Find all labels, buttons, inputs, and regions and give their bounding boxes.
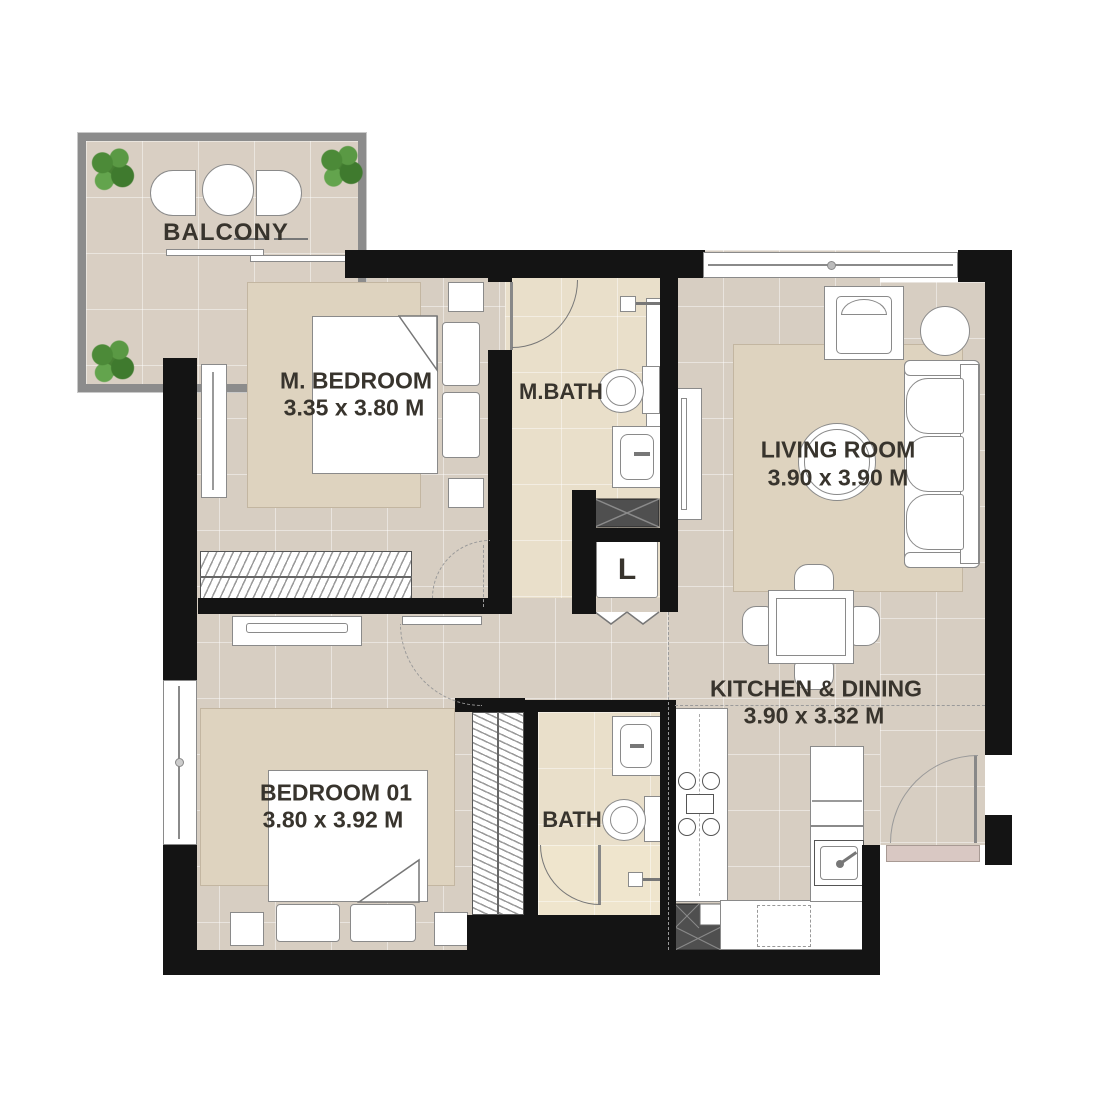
dishwasher-icon <box>757 905 811 947</box>
round-side-table-icon <box>920 306 970 356</box>
entry-step <box>886 845 980 862</box>
tv-unit-icon <box>674 388 702 520</box>
bed-fold-icon <box>357 858 421 904</box>
balcony-chair-icon <box>256 170 302 216</box>
wall-laundry-top <box>594 528 660 542</box>
shower-arm <box>636 302 660 305</box>
nightstand-icon <box>230 912 264 946</box>
plant-icon <box>88 146 136 194</box>
wall-bath-top <box>538 700 660 712</box>
room-dims-bedroom-01: 3.80 x 3.92 M <box>263 809 404 832</box>
wall-bottom-left <box>163 950 480 975</box>
hall-divider <box>483 545 484 607</box>
wall-laundry-left <box>572 490 596 614</box>
wall-bedrooms-divider <box>198 598 512 614</box>
room-dims-m-bedroom: 3.35 x 3.80 M <box>284 397 425 420</box>
toilet-tank <box>642 366 660 414</box>
toilet-seat <box>606 376 636 406</box>
basin-tap <box>634 452 650 456</box>
floor-plan: BALCONY M. BEDROOM 3.35 x 3.80 M M.BATH … <box>0 0 1100 1100</box>
wall-mbath-left-top <box>488 250 512 282</box>
plant-icon <box>88 338 136 386</box>
wall-mbath-right <box>660 250 678 612</box>
pillow-icon <box>276 904 340 942</box>
dresser-inner <box>246 623 348 633</box>
kitchen-corner-unit-icon <box>674 903 722 951</box>
room-label-laundry: L <box>618 555 636 585</box>
balcony-table-icon <box>202 164 254 216</box>
room-dims-living-room: 3.90 x 3.90 M <box>768 467 909 490</box>
room-label-m-bedroom: M. BEDROOM <box>280 370 432 393</box>
stove-burner-icon <box>678 772 696 790</box>
room-dims-kitchen-dining: 3.90 x 3.32 M <box>744 705 885 728</box>
m-bedroom-window-line <box>212 372 214 490</box>
wash-basin-bowl <box>620 434 654 480</box>
shower-head-icon <box>628 872 643 887</box>
wardrobe-midline <box>200 576 412 578</box>
dining-chair-icon <box>794 564 834 592</box>
toilet-seat <box>610 806 638 834</box>
fridge-door-line <box>812 800 862 802</box>
dining-table-inner <box>776 598 846 656</box>
dining-chair-icon <box>742 606 770 646</box>
shower-tray-icon <box>594 498 660 528</box>
pillow-icon <box>442 392 480 458</box>
wall-lobby-right <box>862 845 880 952</box>
stove-burner-icon <box>702 772 720 790</box>
room-label-bedroom-01: BEDROOM 01 <box>260 782 412 805</box>
wall-mbath-left <box>488 350 512 598</box>
nightstand-icon <box>434 912 468 946</box>
wardrobe-midline <box>497 712 499 915</box>
wall-top <box>345 250 705 278</box>
wall-bottom-kitchen <box>455 950 880 975</box>
nightstand-icon <box>448 282 484 312</box>
room-label-kitchen-dining: KITCHEN & DINING <box>710 678 922 701</box>
balcony-chair-icon <box>150 170 196 216</box>
tv-unit-inner <box>681 398 687 510</box>
shower-head-icon <box>620 296 636 312</box>
pillow-icon <box>350 904 416 942</box>
fridge-icon <box>810 746 864 826</box>
wall-left-upper <box>163 358 197 680</box>
stove-center-panel <box>686 794 714 814</box>
room-label-balcony: BALCONY <box>163 221 289 245</box>
sofa-cushion <box>906 494 964 550</box>
basin-tap <box>630 744 644 748</box>
wall-bath-left <box>524 700 538 950</box>
mask-below-step <box>880 862 1012 975</box>
stove-burner-icon <box>678 818 696 836</box>
wall-right-upper <box>985 250 1012 755</box>
pillow-icon <box>442 322 480 386</box>
wall-bath-bottom <box>467 915 676 953</box>
room-label-bath: BATH <box>542 809 601 831</box>
room-label-living-room: LIVING ROOM <box>761 439 916 462</box>
sofa-cushion <box>906 378 964 434</box>
stove-burner-icon <box>702 818 720 836</box>
living-window-dot <box>827 261 836 270</box>
room-label-m-bath: M.BATH <box>519 381 603 403</box>
bedroom-01-window-dot <box>175 758 184 767</box>
plant-icon <box>318 144 364 190</box>
wall-right-lower <box>985 815 1012 865</box>
dining-chair-icon <box>852 606 880 646</box>
bed-fold-icon <box>398 315 439 372</box>
sliding-door-leaf <box>250 255 348 262</box>
nightstand-icon <box>448 478 484 508</box>
bifold-door-icon <box>594 610 660 627</box>
m-bedroom-window <box>201 364 227 498</box>
kitchen-hall-divider <box>668 612 669 950</box>
